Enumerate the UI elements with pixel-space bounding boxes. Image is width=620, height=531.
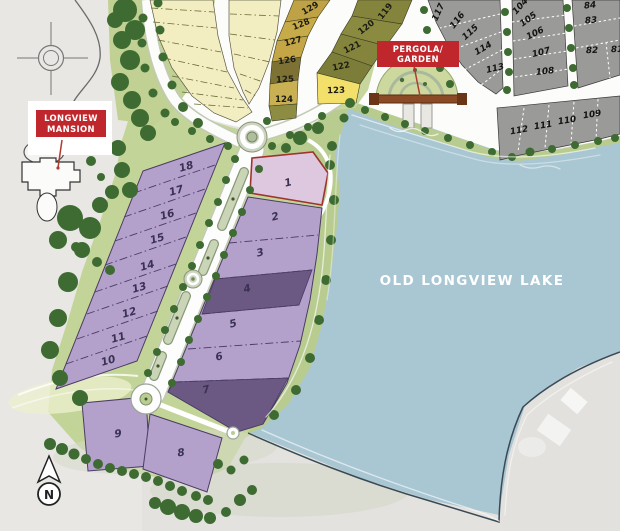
lot-label-124: 124 xyxy=(275,95,293,105)
site-plan-map: 18 17 16 15 14 13 12 11 10 1 2 3 4 5 6 7… xyxy=(0,0,620,531)
roundabout-central xyxy=(237,122,267,152)
se-building-3 xyxy=(518,437,546,457)
lot-label-81: 81 xyxy=(611,45,620,55)
pergola-structure xyxy=(372,95,464,103)
pergola-label-line2: GARDEN xyxy=(397,54,439,64)
pergola-end-west xyxy=(369,93,379,105)
pier-east xyxy=(421,104,432,128)
lot-label-125: 125 xyxy=(276,75,294,86)
mansion-oval xyxy=(37,193,57,221)
lot-label-82: 82 xyxy=(586,46,599,56)
lake-name: OLD LONGVIEW LAKE xyxy=(380,273,565,289)
pergola-label-line1: PERGOLA/ xyxy=(393,44,444,54)
lot-label-84: 84 xyxy=(583,0,596,11)
lot-label-108: 108 xyxy=(535,66,554,78)
compass-letter: N xyxy=(44,488,54,502)
lot-label-83: 83 xyxy=(585,15,598,26)
pergola-end-east xyxy=(457,93,467,105)
lot-label-123: 123 xyxy=(327,86,345,97)
lot-124[interactable] xyxy=(269,104,297,121)
mansion-label-line2: MANSION xyxy=(47,124,95,134)
mansion-label-line1: LONGVIEW xyxy=(44,113,98,123)
